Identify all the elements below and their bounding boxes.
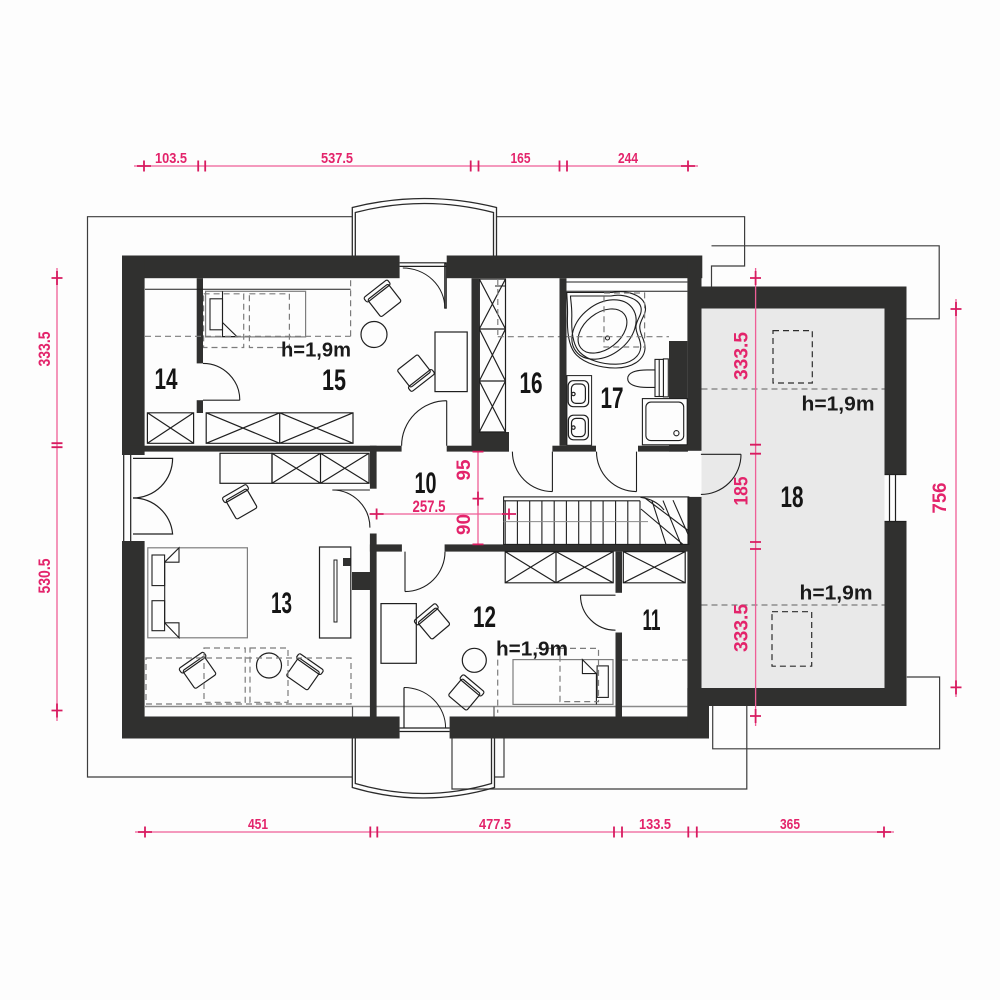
svg-text:133.5: 133.5 <box>639 816 671 833</box>
svg-text:95: 95 <box>454 459 475 480</box>
svg-text:333.5: 333.5 <box>732 332 753 380</box>
svg-text:14: 14 <box>155 363 178 396</box>
svg-text:16: 16 <box>520 367 543 400</box>
svg-text:756: 756 <box>930 483 951 514</box>
svg-text:12: 12 <box>473 601 496 634</box>
svg-text:365: 365 <box>780 816 800 833</box>
svg-text:h=1,9m: h=1,9m <box>800 583 873 605</box>
svg-text:90: 90 <box>454 514 475 535</box>
svg-text:h=1,9m: h=1,9m <box>281 340 351 362</box>
svg-text:15: 15 <box>322 364 346 397</box>
svg-text:451: 451 <box>248 816 268 833</box>
svg-text:530.5: 530.5 <box>36 559 54 594</box>
svg-text:185: 185 <box>732 476 753 505</box>
svg-text:244: 244 <box>618 150 639 167</box>
svg-text:h=1,9m: h=1,9m <box>496 639 568 661</box>
svg-text:333.5: 333.5 <box>36 332 54 367</box>
svg-text:165: 165 <box>511 150 531 167</box>
svg-text:537.5: 537.5 <box>321 150 353 167</box>
svg-text:333.5: 333.5 <box>732 604 753 652</box>
svg-text:477.5: 477.5 <box>479 816 511 833</box>
svg-text:h=1,9m: h=1,9m <box>802 394 875 416</box>
svg-text:17: 17 <box>601 382 624 415</box>
svg-text:13: 13 <box>271 587 292 620</box>
svg-text:18: 18 <box>781 481 804 514</box>
svg-text:10: 10 <box>415 467 437 500</box>
svg-text:103.5: 103.5 <box>155 150 187 167</box>
svg-text:11: 11 <box>643 604 661 637</box>
